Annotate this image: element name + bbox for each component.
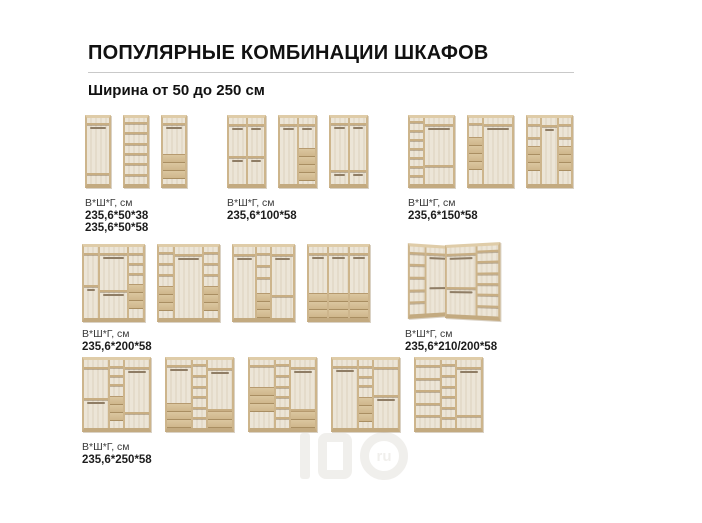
dimensions-caption: В*Ш*Г, см	[227, 197, 368, 209]
wardrobe-figure	[82, 244, 145, 322]
dimensions-value: 235,6*200*58	[82, 341, 370, 353]
group-width-50: В*Ш*Г, см 235,6*50*38 235,6*50*58	[85, 115, 187, 234]
corner-wardrobe-figure	[405, 242, 501, 322]
wardrobe-figure	[307, 244, 370, 322]
dimensions-value: 235,6*100*58	[227, 210, 368, 222]
watermark-glyph	[300, 433, 310, 479]
group-width-100: В*Ш*Г, см 235,6*100*58	[227, 115, 368, 222]
group-labels: В*Ш*Г, см 235,6*210/200*58	[405, 328, 501, 353]
page-subtitle: Ширина от 50 до 250 см	[88, 82, 265, 99]
wardrobe-figure	[85, 115, 111, 188]
wardrobe-figure	[278, 115, 317, 188]
dimensions-value: 235,6*50*38	[85, 210, 187, 222]
group-corner-210-200: В*Ш*Г, см 235,6*210/200*58	[405, 242, 501, 353]
wardrobe-figure	[165, 357, 234, 432]
dimensions-caption: В*Ш*Г, см	[408, 197, 573, 209]
group-labels: В*Ш*Г, см 235,6*250*58	[82, 441, 483, 466]
wardrobe-figure	[123, 115, 149, 188]
wardrobe-figure	[157, 244, 220, 322]
dimensions-caption: В*Ш*Г, см	[82, 328, 370, 340]
group-labels: В*Ш*Г, см 235,6*50*38 235,6*50*58	[85, 197, 187, 234]
wardrobe-figure	[414, 357, 483, 432]
group-labels: В*Ш*Г, см 235,6*100*58	[227, 197, 368, 222]
dimensions-value: 235,6*50*58	[85, 222, 187, 234]
title-divider	[88, 72, 574, 73]
catalog-page: ПОПУЛЯРНЫЕ КОМБИНАЦИИ ШКАФОВ Ширина от 5…	[0, 0, 702, 523]
wardrobe-figure	[227, 115, 266, 188]
dimensions-value: 235,6*150*58	[408, 210, 573, 222]
wardrobe-figure	[329, 115, 368, 188]
wardrobe-figure	[161, 115, 187, 188]
watermark-glyph	[318, 433, 352, 479]
wardrobe-figures	[408, 115, 573, 188]
page-title: ПОПУЛЯРНЫЕ КОМБИНАЦИИ ШКАФОВ	[88, 42, 489, 65]
site-watermark: ru	[300, 432, 408, 480]
wardrobe-figure	[408, 115, 455, 188]
dimensions-caption: В*Ш*Г, см	[82, 441, 483, 453]
watermark-ru-label: ru	[377, 448, 392, 465]
wardrobe-figure	[331, 357, 400, 432]
wardrobe-figures	[85, 115, 187, 188]
dimensions-caption: В*Ш*Г, см	[405, 328, 501, 340]
wardrobe-figure	[248, 357, 317, 432]
wardrobe-figure	[232, 244, 295, 322]
dimensions-value: 235,6*250*58	[82, 454, 483, 466]
wardrobe-figures	[227, 115, 368, 188]
dimensions-caption: В*Ш*Г, см	[85, 197, 187, 209]
group-width-150: В*Ш*Г, см 235,6*150*58	[408, 115, 573, 222]
group-width-250: В*Ш*Г, см 235,6*250*58	[82, 357, 483, 466]
watermark-ru-badge: ru	[360, 432, 408, 480]
wardrobe-figure	[82, 357, 151, 432]
wardrobe-figures	[82, 242, 370, 322]
wardrobe-figure	[526, 115, 573, 188]
group-labels: В*Ш*Г, см 235,6*200*58	[82, 328, 370, 353]
group-width-200: В*Ш*Г, см 235,6*200*58	[82, 242, 370, 353]
wardrobe-figures	[82, 357, 483, 432]
wardrobe-figures	[405, 242, 501, 322]
dimensions-value: 235,6*210/200*58	[405, 341, 501, 353]
group-labels: В*Ш*Г, см 235,6*150*58	[408, 197, 573, 222]
wardrobe-figure	[445, 242, 500, 321]
wardrobe-figure	[467, 115, 514, 188]
